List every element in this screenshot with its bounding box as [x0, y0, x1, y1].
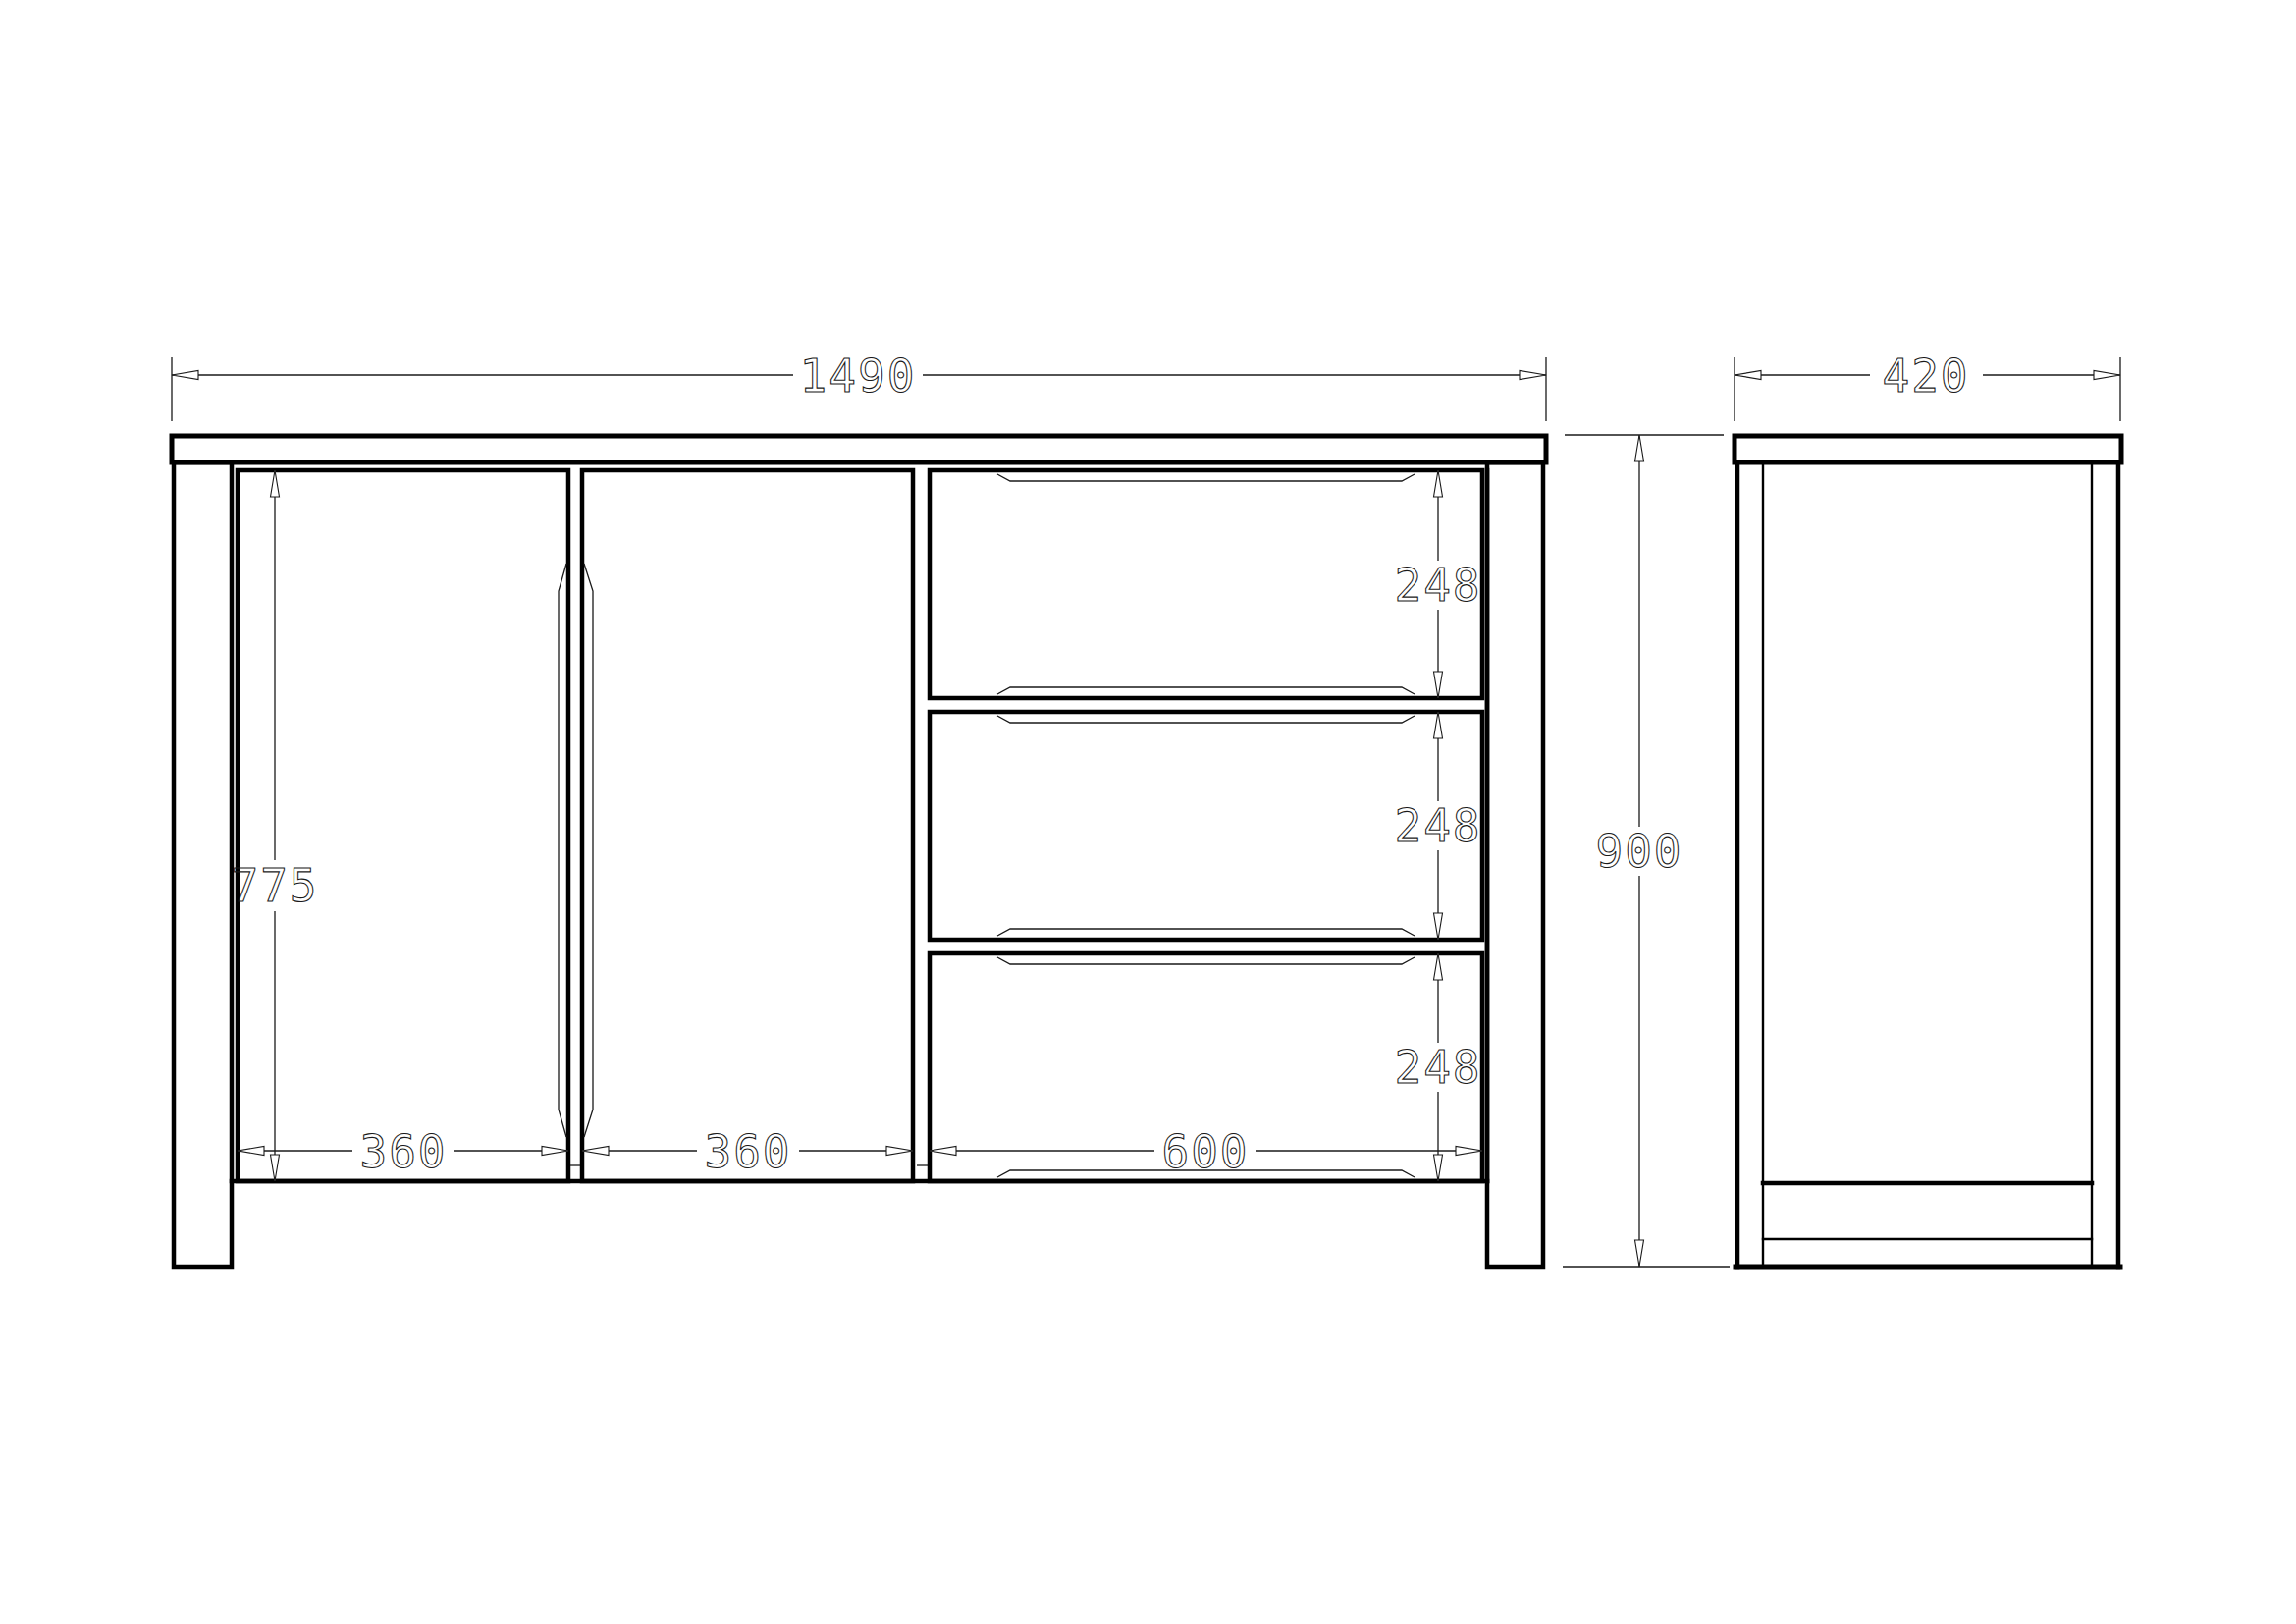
dim-door-height: 775	[231, 470, 318, 1181]
dim-overall-width-label: 1490	[800, 350, 917, 403]
dim-overall-height: 900	[1563, 435, 1730, 1267]
left-door-handle-groove	[559, 564, 566, 1137]
dim-depth: 420	[1735, 350, 2120, 421]
left-door	[238, 470, 568, 1181]
drawer-top-upper-recess	[997, 474, 1415, 481]
dim-door-height-label: 775	[231, 859, 318, 912]
arrow-left	[172, 371, 198, 380]
dim-overall-height-label: 900	[1595, 825, 1682, 878]
left-door-front	[238, 470, 568, 1181]
front-top-panel	[172, 436, 1546, 462]
dim-drawer1-height-label: 248	[1394, 559, 1481, 612]
arrow-right	[886, 1147, 913, 1156]
arrow-down	[1434, 672, 1443, 698]
side-top-panel	[1735, 436, 2121, 462]
drawer-middle-lower-recess	[997, 929, 1415, 936]
dim-drawer-width-label: 600	[1161, 1125, 1249, 1178]
dim-drawer1-height: 248	[1394, 470, 1481, 698]
dimensions: 1490 420 900 775	[172, 350, 2120, 1267]
right-door-handle-groove	[584, 564, 593, 1137]
arrow-left	[582, 1147, 609, 1156]
dim-drawer2-height: 248	[1394, 712, 1481, 940]
arrow-left	[1735, 371, 1761, 380]
arrow-up	[1635, 435, 1644, 461]
arrow-up	[1434, 712, 1443, 738]
dim-overall-width: 1490	[172, 350, 1546, 421]
right-door-front	[582, 470, 913, 1181]
drawer-top-lower-recess	[997, 687, 1415, 694]
arrow-up	[271, 470, 280, 497]
dim-drawer3-height-label: 248	[1394, 1041, 1481, 1094]
arrow-right	[542, 1147, 568, 1156]
dim-depth-label: 420	[1882, 350, 1969, 403]
arrow-down	[271, 1155, 280, 1181]
arrow-down	[1635, 1240, 1644, 1267]
front-left-leg	[174, 462, 232, 1267]
arrow-left	[930, 1147, 956, 1156]
dim-right-door-width-label: 360	[704, 1125, 791, 1178]
dim-drawer2-height-label: 248	[1394, 799, 1481, 852]
drawer-middle-upper-recess	[997, 716, 1415, 723]
drawing-sheet: 1490 420 900 775	[0, 0, 2296, 1624]
arrow-right	[1456, 1147, 1482, 1156]
side-view	[1735, 436, 2121, 1267]
arrow-up	[1434, 953, 1443, 980]
dim-drawer3-height: 248	[1394, 953, 1481, 1181]
arrow-right	[2094, 371, 2120, 380]
arrow-right	[1520, 371, 1546, 380]
arrow-down	[1434, 1155, 1443, 1181]
arrow-left	[238, 1147, 264, 1156]
front-right-leg	[1487, 462, 1543, 1267]
arrow-up	[1434, 470, 1443, 497]
drawer-bottom-upper-recess	[997, 957, 1415, 964]
right-door	[582, 470, 913, 1181]
dim-left-door-width-label: 360	[359, 1125, 447, 1178]
arrow-down	[1434, 913, 1443, 940]
dim-left-door-width: 360	[238, 1125, 568, 1178]
dim-right-door-width: 360	[582, 1125, 913, 1178]
